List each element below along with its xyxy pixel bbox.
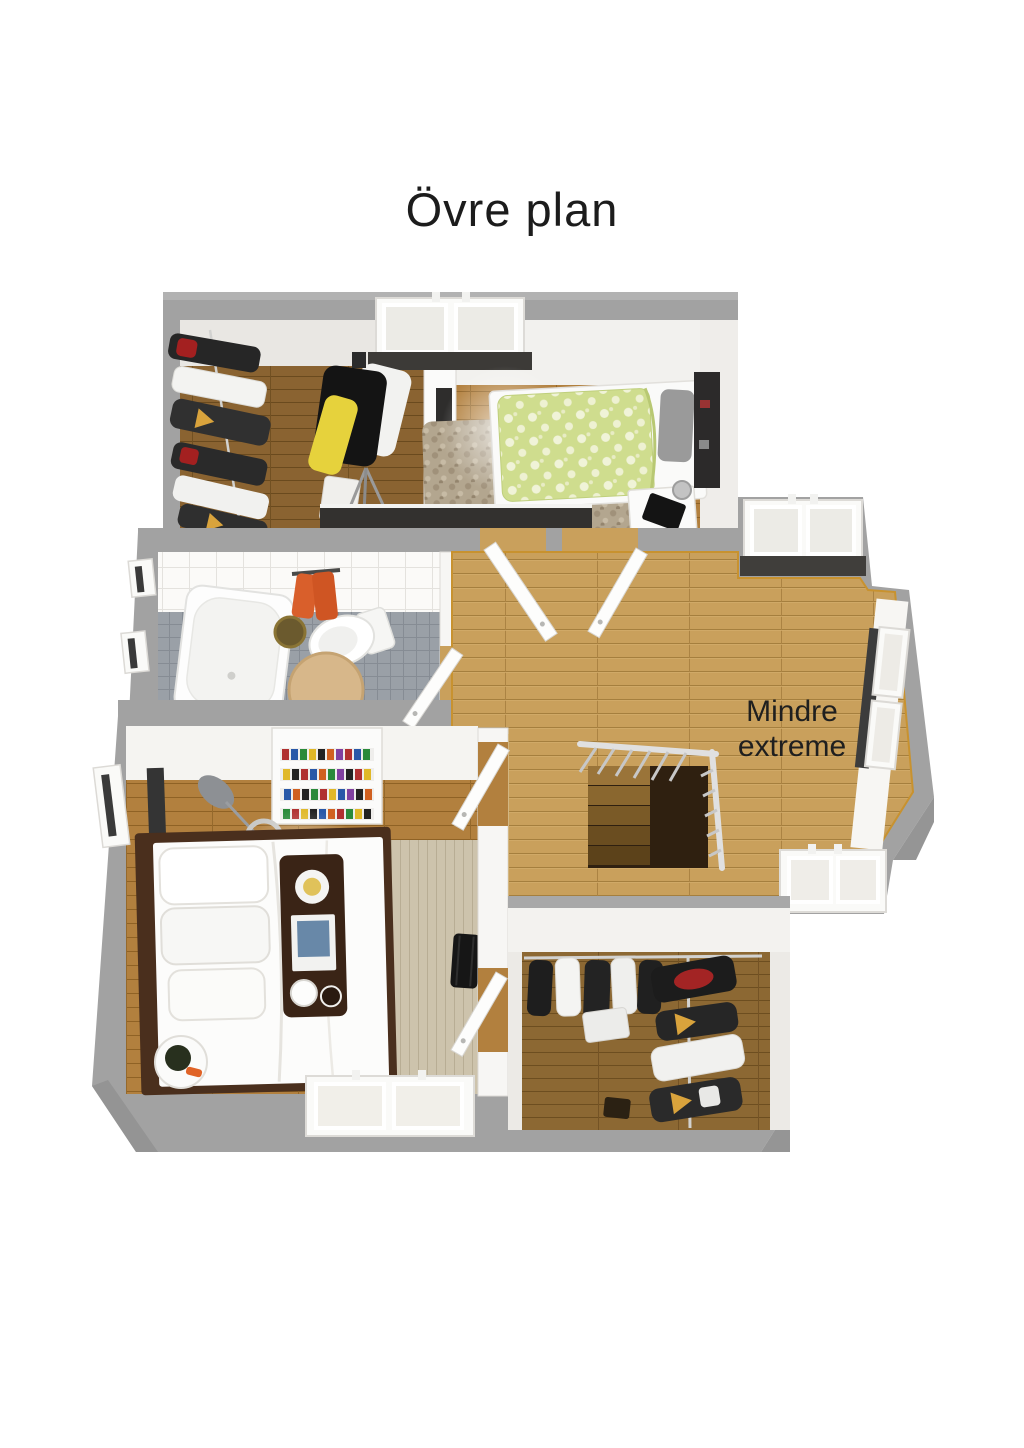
basket	[275, 617, 305, 647]
room-label: Mindre extreme	[712, 694, 872, 765]
closet2-north-wall	[508, 896, 790, 910]
floorplan-page: Övre plan	[0, 0, 1024, 1448]
poster-detail	[700, 400, 710, 408]
breakfast-tray	[279, 854, 347, 1018]
suitcase	[450, 933, 481, 989]
bay-window-north	[740, 494, 866, 576]
closet2-east-wallface	[770, 952, 790, 1130]
walkin-closet-2	[508, 896, 790, 1130]
top-section	[167, 292, 738, 560]
master-south-window	[306, 1070, 474, 1136]
closet2-west-wallface	[508, 952, 522, 1130]
north-window	[368, 292, 532, 370]
poster-detail2	[699, 440, 709, 449]
master-bedroom	[93, 726, 481, 1136]
round-stool	[155, 1036, 207, 1088]
closet2-wallface	[508, 908, 790, 956]
wall-poster	[694, 372, 720, 488]
door-opening-2	[562, 528, 638, 552]
top-south-wall	[138, 528, 738, 552]
bay-window-south	[780, 844, 886, 912]
